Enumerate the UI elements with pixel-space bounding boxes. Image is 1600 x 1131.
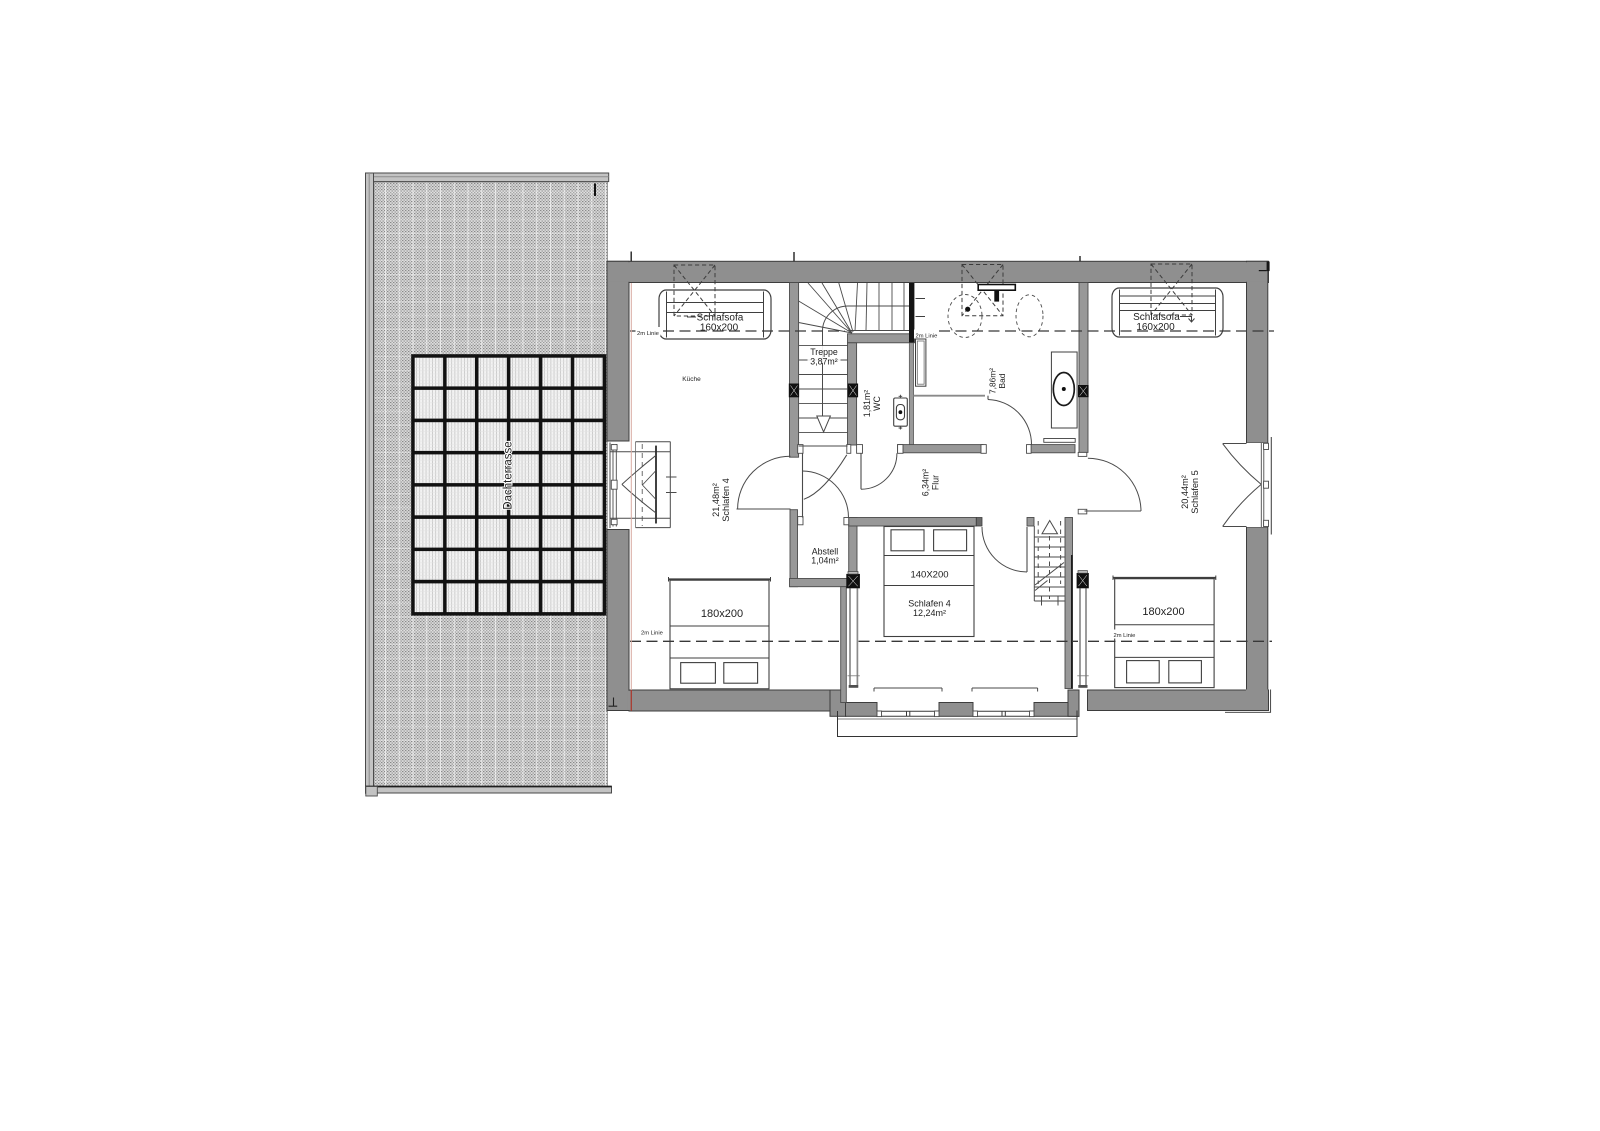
- svg-text:2m Linie: 2m Linie: [637, 331, 659, 337]
- svg-text:7,86m²: 7,86m²: [988, 368, 998, 394]
- svg-text:2m Linie: 2m Linie: [916, 333, 938, 339]
- svg-text:12,24m²: 12,24m²: [913, 608, 946, 618]
- svg-text:Küche: Küche: [682, 376, 701, 383]
- svg-text:Dachterrasse: Dachterrasse: [503, 441, 515, 509]
- svg-text:Flur: Flur: [931, 475, 941, 490]
- svg-text:160x200: 160x200: [700, 323, 739, 334]
- svg-text:Treppe: Treppe: [810, 347, 838, 357]
- svg-text:3,87m²: 3,87m²: [810, 357, 837, 367]
- svg-text:6,34m²: 6,34m²: [921, 469, 931, 496]
- svg-text:2m Linie: 2m Linie: [641, 631, 663, 637]
- svg-text:140X200: 140X200: [910, 570, 948, 581]
- svg-text:180x200: 180x200: [1142, 606, 1184, 618]
- svg-text:2m Linie: 2m Linie: [1114, 633, 1136, 639]
- svg-text:Schlafen 4: Schlafen 4: [908, 599, 951, 609]
- svg-text:180x200: 180x200: [701, 608, 743, 620]
- svg-text:WC: WC: [872, 396, 882, 411]
- svg-text:1,04m²: 1,04m²: [811, 556, 838, 566]
- svg-text:Bad: Bad: [997, 373, 1007, 388]
- svg-text:1,81m²: 1,81m²: [862, 390, 872, 417]
- svg-text:Schlafen 5: Schlafen 5: [1190, 470, 1200, 513]
- svg-text:20,44m²: 20,44m²: [1180, 475, 1190, 509]
- svg-text:Schlafen 4: Schlafen 4: [721, 478, 731, 521]
- svg-text:21,48m²: 21,48m²: [711, 483, 721, 517]
